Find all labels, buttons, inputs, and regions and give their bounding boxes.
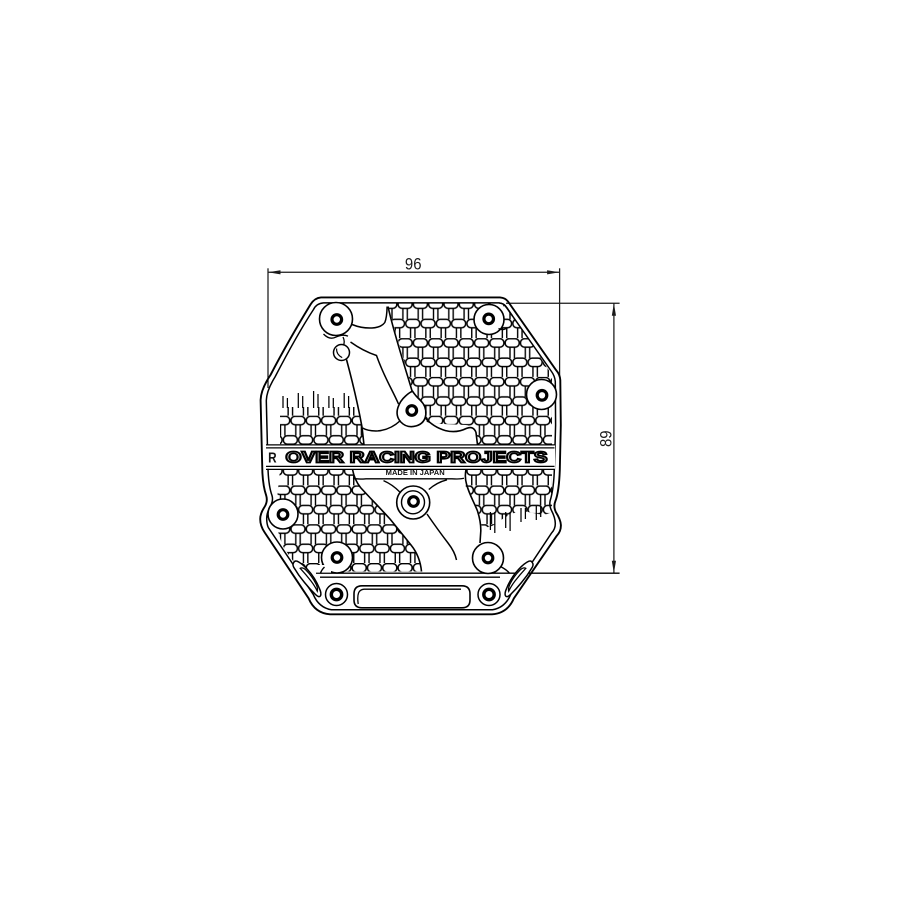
- svg-text:89: 89: [597, 430, 615, 447]
- svg-text:OVER RACING PROJECTS: OVER RACING PROJECTS: [286, 449, 548, 466]
- svg-text:MADE IN JAPAN: MADE IN JAPAN: [386, 468, 445, 477]
- svg-text:R: R: [268, 449, 277, 466]
- svg-text:96: 96: [405, 255, 422, 273]
